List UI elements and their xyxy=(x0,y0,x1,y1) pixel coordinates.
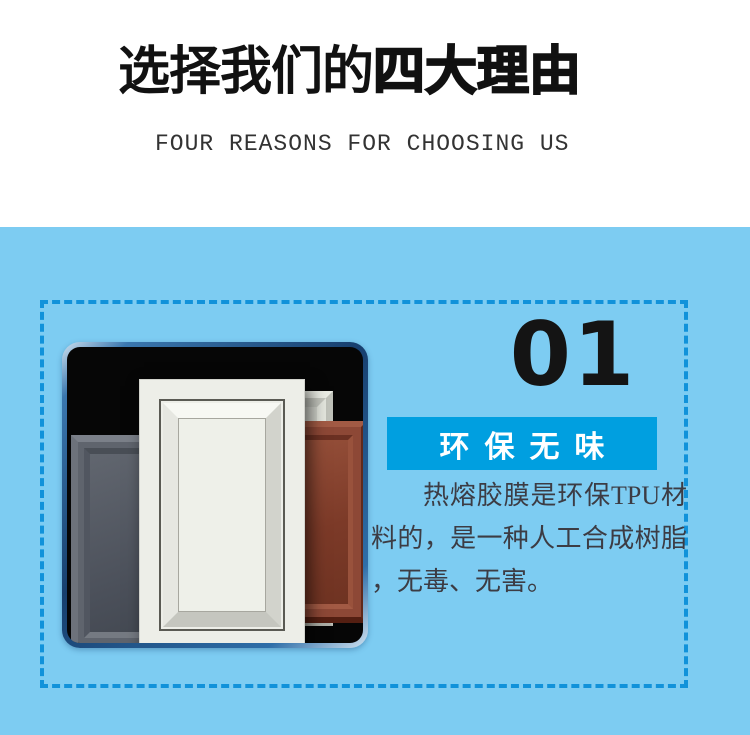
reason-title: 环保无味 xyxy=(440,422,620,466)
reason-title-banner: 环保无味 xyxy=(387,417,657,470)
door-sample-white-panel xyxy=(178,418,266,612)
page-subtitle: FOUR REASONS FOR CHOOSING US xyxy=(155,131,569,157)
reason-number: 01 xyxy=(498,311,648,399)
door-sample-white-bevel xyxy=(163,403,281,627)
reasons-section: 01 环保无味 热熔胶膜是环保TPU材料的，是一种人工合成树脂，无毒、无害。 xyxy=(0,227,750,735)
header: 选择我们的四大理由 FOUR REASONS FOR CHOOSING US xyxy=(0,0,750,227)
title-bold: 四大理由 xyxy=(373,42,581,102)
door-sample-white xyxy=(139,379,305,643)
product-image xyxy=(62,342,368,648)
title-regular: 选择我们的 xyxy=(118,44,373,101)
product-image-canvas xyxy=(67,347,363,643)
page-title: 选择我们的四大理由 xyxy=(118,40,581,105)
promo-page: 选择我们的四大理由 FOUR REASONS FOR CHOOSING US xyxy=(0,0,750,735)
reason-description: 热熔胶膜是环保TPU材料的，是一种人工合成树脂，无毒、无害。 xyxy=(371,474,687,603)
